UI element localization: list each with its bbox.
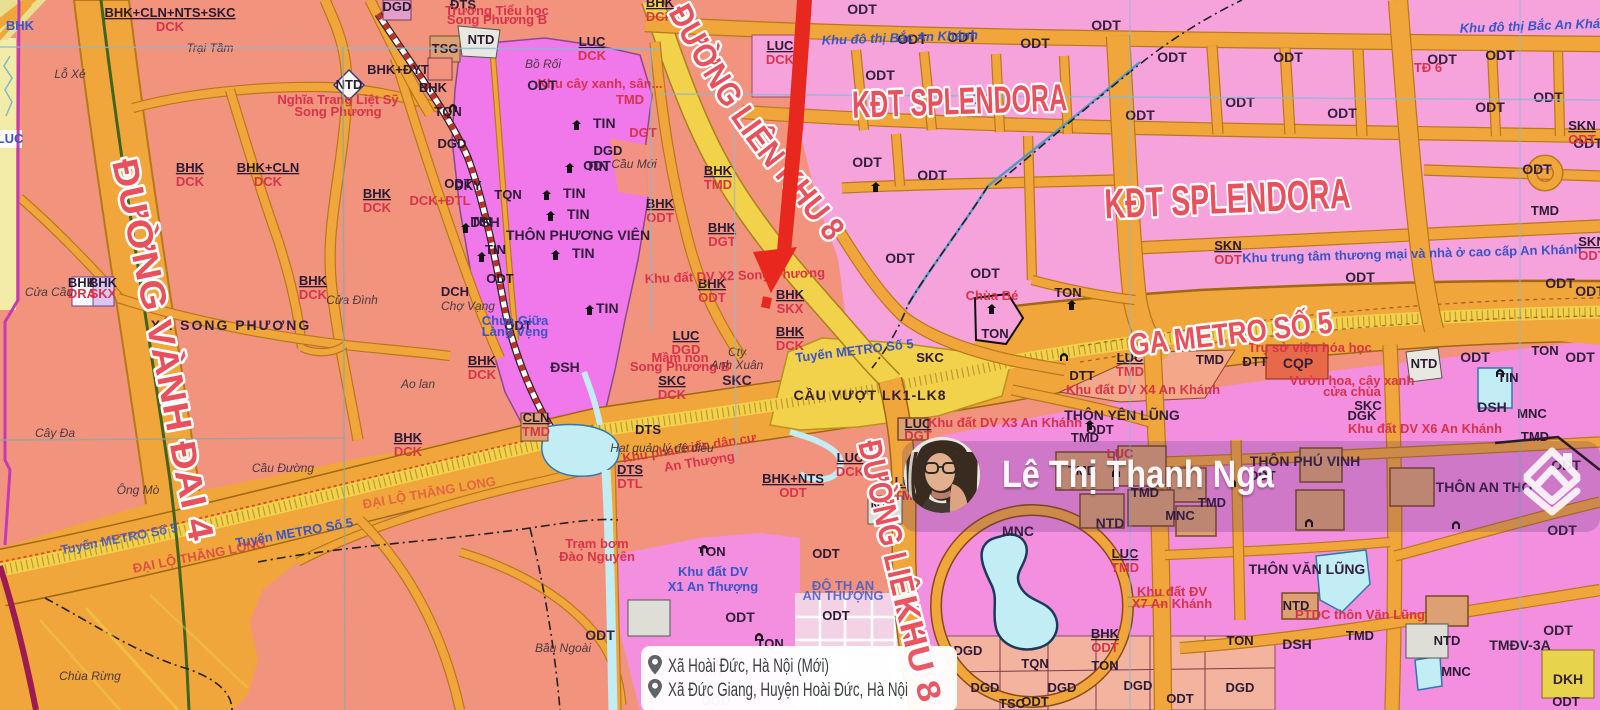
svg-text:Ao lan: Ao lan: [400, 377, 435, 391]
svg-text:Cầu Mới: Cầu Mới: [611, 157, 657, 171]
svg-text:LUC: LUC: [0, 131, 24, 146]
svg-text:Song Phương B: Song Phương B: [447, 12, 547, 27]
svg-text:SKC: SKC: [658, 373, 686, 388]
svg-text:LUC: LUC: [1112, 546, 1139, 561]
svg-text:ODT: ODT: [1485, 47, 1515, 63]
svg-text:TIN: TIN: [485, 242, 506, 257]
svg-text:DGD: DGD: [971, 680, 1000, 695]
svg-text:DTS: DTS: [617, 462, 643, 477]
svg-text:DCK: DCK: [363, 200, 392, 215]
svg-text:Khu đất DV X3 An Khánh: Khu đất DV X3 An Khánh: [928, 415, 1082, 430]
svg-text:SKC: SKC: [916, 350, 944, 365]
svg-text:Đào Nguyên: Đào Nguyên: [559, 549, 635, 564]
svg-text:TON: TON: [1091, 658, 1118, 673]
svg-text:TIN: TIN: [596, 300, 619, 316]
svg-text:BHK: BHK: [704, 163, 733, 178]
svg-text:NTD: NTD: [1411, 356, 1438, 371]
svg-text:ODT: ODT: [1460, 349, 1490, 365]
svg-text:LUC: LUC: [673, 328, 700, 343]
svg-text:THÔN YÊN LŨNG: THÔN YÊN LŨNG: [1064, 406, 1180, 423]
svg-text:DKH: DKH: [1553, 671, 1583, 687]
svg-text:BHK: BHK: [468, 353, 497, 368]
svg-text:ODT: ODT: [725, 609, 755, 625]
svg-text:BHK: BHK: [646, 196, 675, 211]
svg-text:DCK: DCK: [468, 367, 497, 382]
svg-text:TMD: TMD: [704, 177, 732, 192]
svg-text:ODT: ODT: [585, 627, 615, 643]
svg-text:NTD: NTD: [1434, 633, 1461, 648]
svg-text:DGD: DGD: [1048, 680, 1077, 695]
svg-text:DGT: DGT: [708, 234, 736, 249]
svg-text:ODT: ODT: [1475, 99, 1505, 115]
svg-text:ODT: ODT: [1214, 252, 1242, 267]
svg-text:DGT: DGT: [629, 125, 657, 140]
svg-text:NTD: NTD: [468, 32, 495, 47]
svg-text:Khu đất DV: Khu đất DV: [678, 564, 748, 579]
svg-text:SKX: SKX: [90, 286, 117, 301]
svg-text:ODT: ODT: [812, 546, 840, 561]
svg-text:CQP: CQP: [1283, 355, 1313, 371]
svg-text:SKN: SKN: [1214, 238, 1241, 253]
svg-text:TON: TON: [698, 544, 725, 559]
svg-text:TQN: TQN: [434, 104, 461, 119]
svg-text:Anh Xuân: Anh Xuân: [710, 358, 764, 372]
svg-text:DCH: DCH: [441, 284, 469, 299]
svg-text:ODT: ODT: [1091, 17, 1121, 33]
svg-text:BHK: BHK: [363, 186, 392, 201]
svg-text:DSH: DSH: [1477, 399, 1507, 415]
svg-text:DGD: DGD: [1226, 680, 1255, 695]
svg-text:ODT: ODT: [970, 265, 1000, 281]
svg-text:BHK: BHK: [776, 287, 805, 302]
svg-text:PTDC thôn Văn Lũng: PTDC thôn Văn Lũng: [1295, 607, 1425, 622]
svg-text:TMD: TMD: [1531, 203, 1559, 218]
svg-text:BHK+CLN: BHK+CLN: [237, 160, 299, 175]
svg-text:ODT: ODT: [1533, 89, 1563, 105]
svg-text:DGD: DGD: [438, 136, 467, 151]
svg-text:Ông Mò: Ông Mò: [117, 482, 160, 497]
svg-text:BHK+ĐYT: BHK+ĐYT: [367, 62, 429, 77]
svg-text:TON: TON: [1226, 633, 1253, 648]
svg-text:DSH: DSH: [1282, 636, 1312, 652]
svg-text:Cửa Cầu: Cửa Cầu: [25, 285, 74, 299]
svg-text:DGD: DGD: [383, 0, 412, 14]
svg-text:Chùa Rừng: Chùa Rừng: [59, 669, 121, 683]
svg-text:Lê Thị Thanh Nga: Lê Thị Thanh Nga: [1002, 454, 1275, 496]
svg-text:DCK: DCK: [394, 444, 423, 459]
svg-text:BHK+CLN+NTS+SKC: BHK+CLN+NTS+SKC: [104, 5, 236, 20]
svg-text:Bồ Rối: Bồ Rối: [525, 57, 561, 71]
svg-text:THÔN VĂN LŨNG: THÔN VĂN LŨNG: [1249, 560, 1366, 577]
svg-text:Song Phương: Song Phương: [294, 104, 381, 119]
svg-text:TMD: TMD: [616, 92, 644, 107]
svg-text:ODT: ODT: [847, 1, 877, 17]
svg-text:Chùa Bé: Chùa Bé: [966, 288, 1019, 303]
svg-text:DCK: DCK: [578, 48, 607, 63]
svg-text:ODT: ODT: [852, 154, 882, 170]
svg-text:ODT: ODT: [1166, 691, 1194, 706]
svg-text:TIN: TIN: [593, 115, 616, 131]
svg-text:ODT: ODT: [865, 67, 895, 83]
svg-text:Khu đất DV X4 An Khánh: Khu đất DV X4 An Khánh: [1066, 382, 1220, 397]
svg-text:DTL: DTL: [617, 476, 642, 491]
svg-text:DGD: DGD: [516, 0, 545, 3]
svg-text:ODT: ODT: [885, 250, 915, 266]
svg-text:ĐSH: ĐSH: [550, 359, 580, 375]
svg-text:SKX: SKX: [777, 301, 804, 316]
svg-text:Chợ Vạng: Chợ Vạng: [441, 299, 495, 313]
svg-text:NTD: NTD: [1283, 598, 1310, 613]
svg-text:ODT: ODT: [1575, 283, 1600, 299]
svg-text:DCK: DCK: [156, 19, 185, 34]
svg-text:LUC: LUC: [579, 34, 606, 49]
svg-text:ODT: ODT: [1552, 694, 1580, 709]
svg-text:THÔN PHƯƠNG VIÊN: THÔN PHƯƠNG VIÊN: [506, 226, 650, 243]
svg-text:NTD: NTD: [336, 77, 363, 92]
svg-text:ODT: ODT: [779, 485, 807, 500]
svg-text:TIN: TIN: [471, 214, 492, 229]
svg-text:ODT: ODT: [1565, 349, 1595, 365]
svg-text:CLN: CLN: [523, 410, 550, 425]
svg-text:TIN: TIN: [567, 206, 590, 222]
svg-text:SKC: SKC: [722, 372, 752, 388]
svg-text:X1 An Thượng: X1 An Thượng: [668, 579, 758, 594]
svg-text:ODT: ODT: [1157, 49, 1187, 65]
svg-text:AN THƯỢNG: AN THƯỢNG: [802, 588, 883, 603]
svg-text:Xã Đức Giang, Huyện Hoài Đức,: Xã Đức Giang, Huyện Hoài Đức, Hà Nội: [668, 680, 908, 701]
svg-text:BHK: BHK: [394, 430, 423, 445]
svg-text:TĐ 6: TĐ 6: [1414, 60, 1442, 75]
svg-text:ODT: ODT: [1020, 35, 1050, 51]
svg-text:DKY: DKY: [454, 178, 482, 193]
svg-text:ODT: ODT: [486, 271, 514, 286]
svg-text:DCK: DCK: [658, 387, 687, 402]
svg-text:BHK: BHK: [419, 80, 448, 95]
svg-text:Hạt quản lý đê điều: Hạt quản lý đê điều: [610, 441, 714, 455]
svg-text:Cty: Cty: [728, 345, 747, 359]
svg-text:TIN: TIN: [586, 158, 609, 174]
svg-text:SKN: SKN: [1578, 234, 1600, 249]
svg-text:MNC: MNC: [1517, 406, 1547, 421]
svg-text:DCK: DCK: [254, 174, 283, 189]
svg-text:ODT: ODT: [527, 77, 557, 93]
svg-text:LUC: LUC: [767, 38, 794, 53]
svg-text:DGD: DGD: [1124, 678, 1153, 693]
svg-text:ODT: ODT: [1345, 269, 1375, 285]
svg-text:DGT: DGT: [566, 0, 594, 3]
svg-text:ODT: ODT: [1543, 622, 1573, 638]
svg-text:SKN: SKN: [1568, 118, 1595, 133]
svg-text:KĐT SPLENDORA: KĐT SPLENDORA: [851, 77, 1067, 126]
svg-text:ĐTT: ĐTT: [1242, 354, 1267, 369]
svg-text:ODT: ODT: [822, 608, 850, 623]
svg-text:ODT: ODT: [917, 167, 947, 183]
svg-text:TON: TON: [981, 326, 1008, 341]
svg-text:cửa chùa: cửa chùa: [1323, 384, 1382, 399]
svg-text:DCK+ĐTL: DCK+ĐTL: [409, 193, 470, 208]
svg-text:DGD: DGD: [594, 143, 623, 158]
svg-text:DCK: DCK: [299, 287, 328, 302]
svg-text:TIN: TIN: [572, 245, 595, 261]
svg-text:ODT: ODT: [1225, 94, 1255, 110]
svg-text:Làng Vẹng: Làng Vẹng: [482, 324, 549, 339]
svg-text:TON: TON: [1054, 285, 1081, 300]
svg-text:BHK: BHK: [176, 160, 205, 175]
svg-text:ODT: ODT: [698, 290, 726, 305]
svg-text:BHK+NTS: BHK+NTS: [762, 471, 824, 486]
svg-text:DTT: DTT: [1069, 368, 1094, 383]
svg-text:TQN: TQN: [1021, 656, 1048, 671]
svg-text:Cây Đa: Cây Đa: [35, 426, 75, 440]
svg-text:DTS: DTS: [635, 422, 661, 437]
svg-text:BHK: BHK: [1091, 626, 1120, 641]
svg-text:ODT: ODT: [1021, 694, 1049, 709]
svg-text:Khu đất DV X6 An Khánh: Khu đất DV X6 An Khánh: [1348, 421, 1502, 436]
svg-text:Cầu Đường: Cầu Đường: [252, 461, 315, 475]
svg-text:TMD: TMD: [522, 424, 550, 439]
svg-text:Xã Hoài Đức, Hà Nội (Mới): Xã Hoài Đức, Hà Nội (Mới): [668, 656, 829, 677]
svg-text:ODT: ODT: [1273, 49, 1303, 65]
svg-text:BHK: BHK: [299, 273, 328, 288]
svg-text:MNC: MNC: [1441, 664, 1471, 679]
svg-text:ODT: ODT: [1327, 105, 1357, 121]
svg-text:X7 An Khánh: X7 An Khánh: [1132, 596, 1212, 611]
svg-text:ODT: ODT: [1522, 161, 1552, 177]
svg-text:ODT: ODT: [1578, 248, 1600, 263]
svg-text:TON: TON: [1531, 343, 1558, 358]
svg-text:CẦU VƯỢT LK1-LK8: CẦU VƯỢT LK1-LK8: [793, 387, 946, 403]
svg-text:BHK: BHK: [776, 324, 805, 339]
svg-text:TMD: TMD: [1521, 429, 1549, 444]
svg-text:DGD: DGD: [954, 643, 983, 658]
svg-text:TMD: TMD: [1346, 628, 1374, 643]
svg-text:Lỗ Xé: Lỗ Xé: [54, 66, 86, 81]
svg-text:TMD: TMD: [1111, 560, 1139, 575]
svg-text:DCK: DCK: [176, 174, 205, 189]
svg-text:ODT: ODT: [1545, 275, 1575, 291]
svg-text:TIN: TIN: [563, 185, 586, 201]
svg-text:DGK: DGK: [1348, 408, 1378, 423]
svg-text:Cửa Đình: Cửa Đình: [326, 293, 378, 307]
svg-text:ODT: ODT: [1091, 640, 1119, 655]
svg-text:TIN: TIN: [1498, 370, 1519, 385]
svg-text:ODT: ODT: [1568, 132, 1596, 147]
svg-text:DCK: DCK: [766, 52, 795, 67]
svg-text:BHK: BHK: [708, 220, 737, 235]
svg-text:TQN: TQN: [494, 187, 521, 202]
svg-text:BHK: BHK: [6, 18, 35, 33]
svg-text:Bầu Ngoài: Bầu Ngoài: [535, 641, 591, 655]
